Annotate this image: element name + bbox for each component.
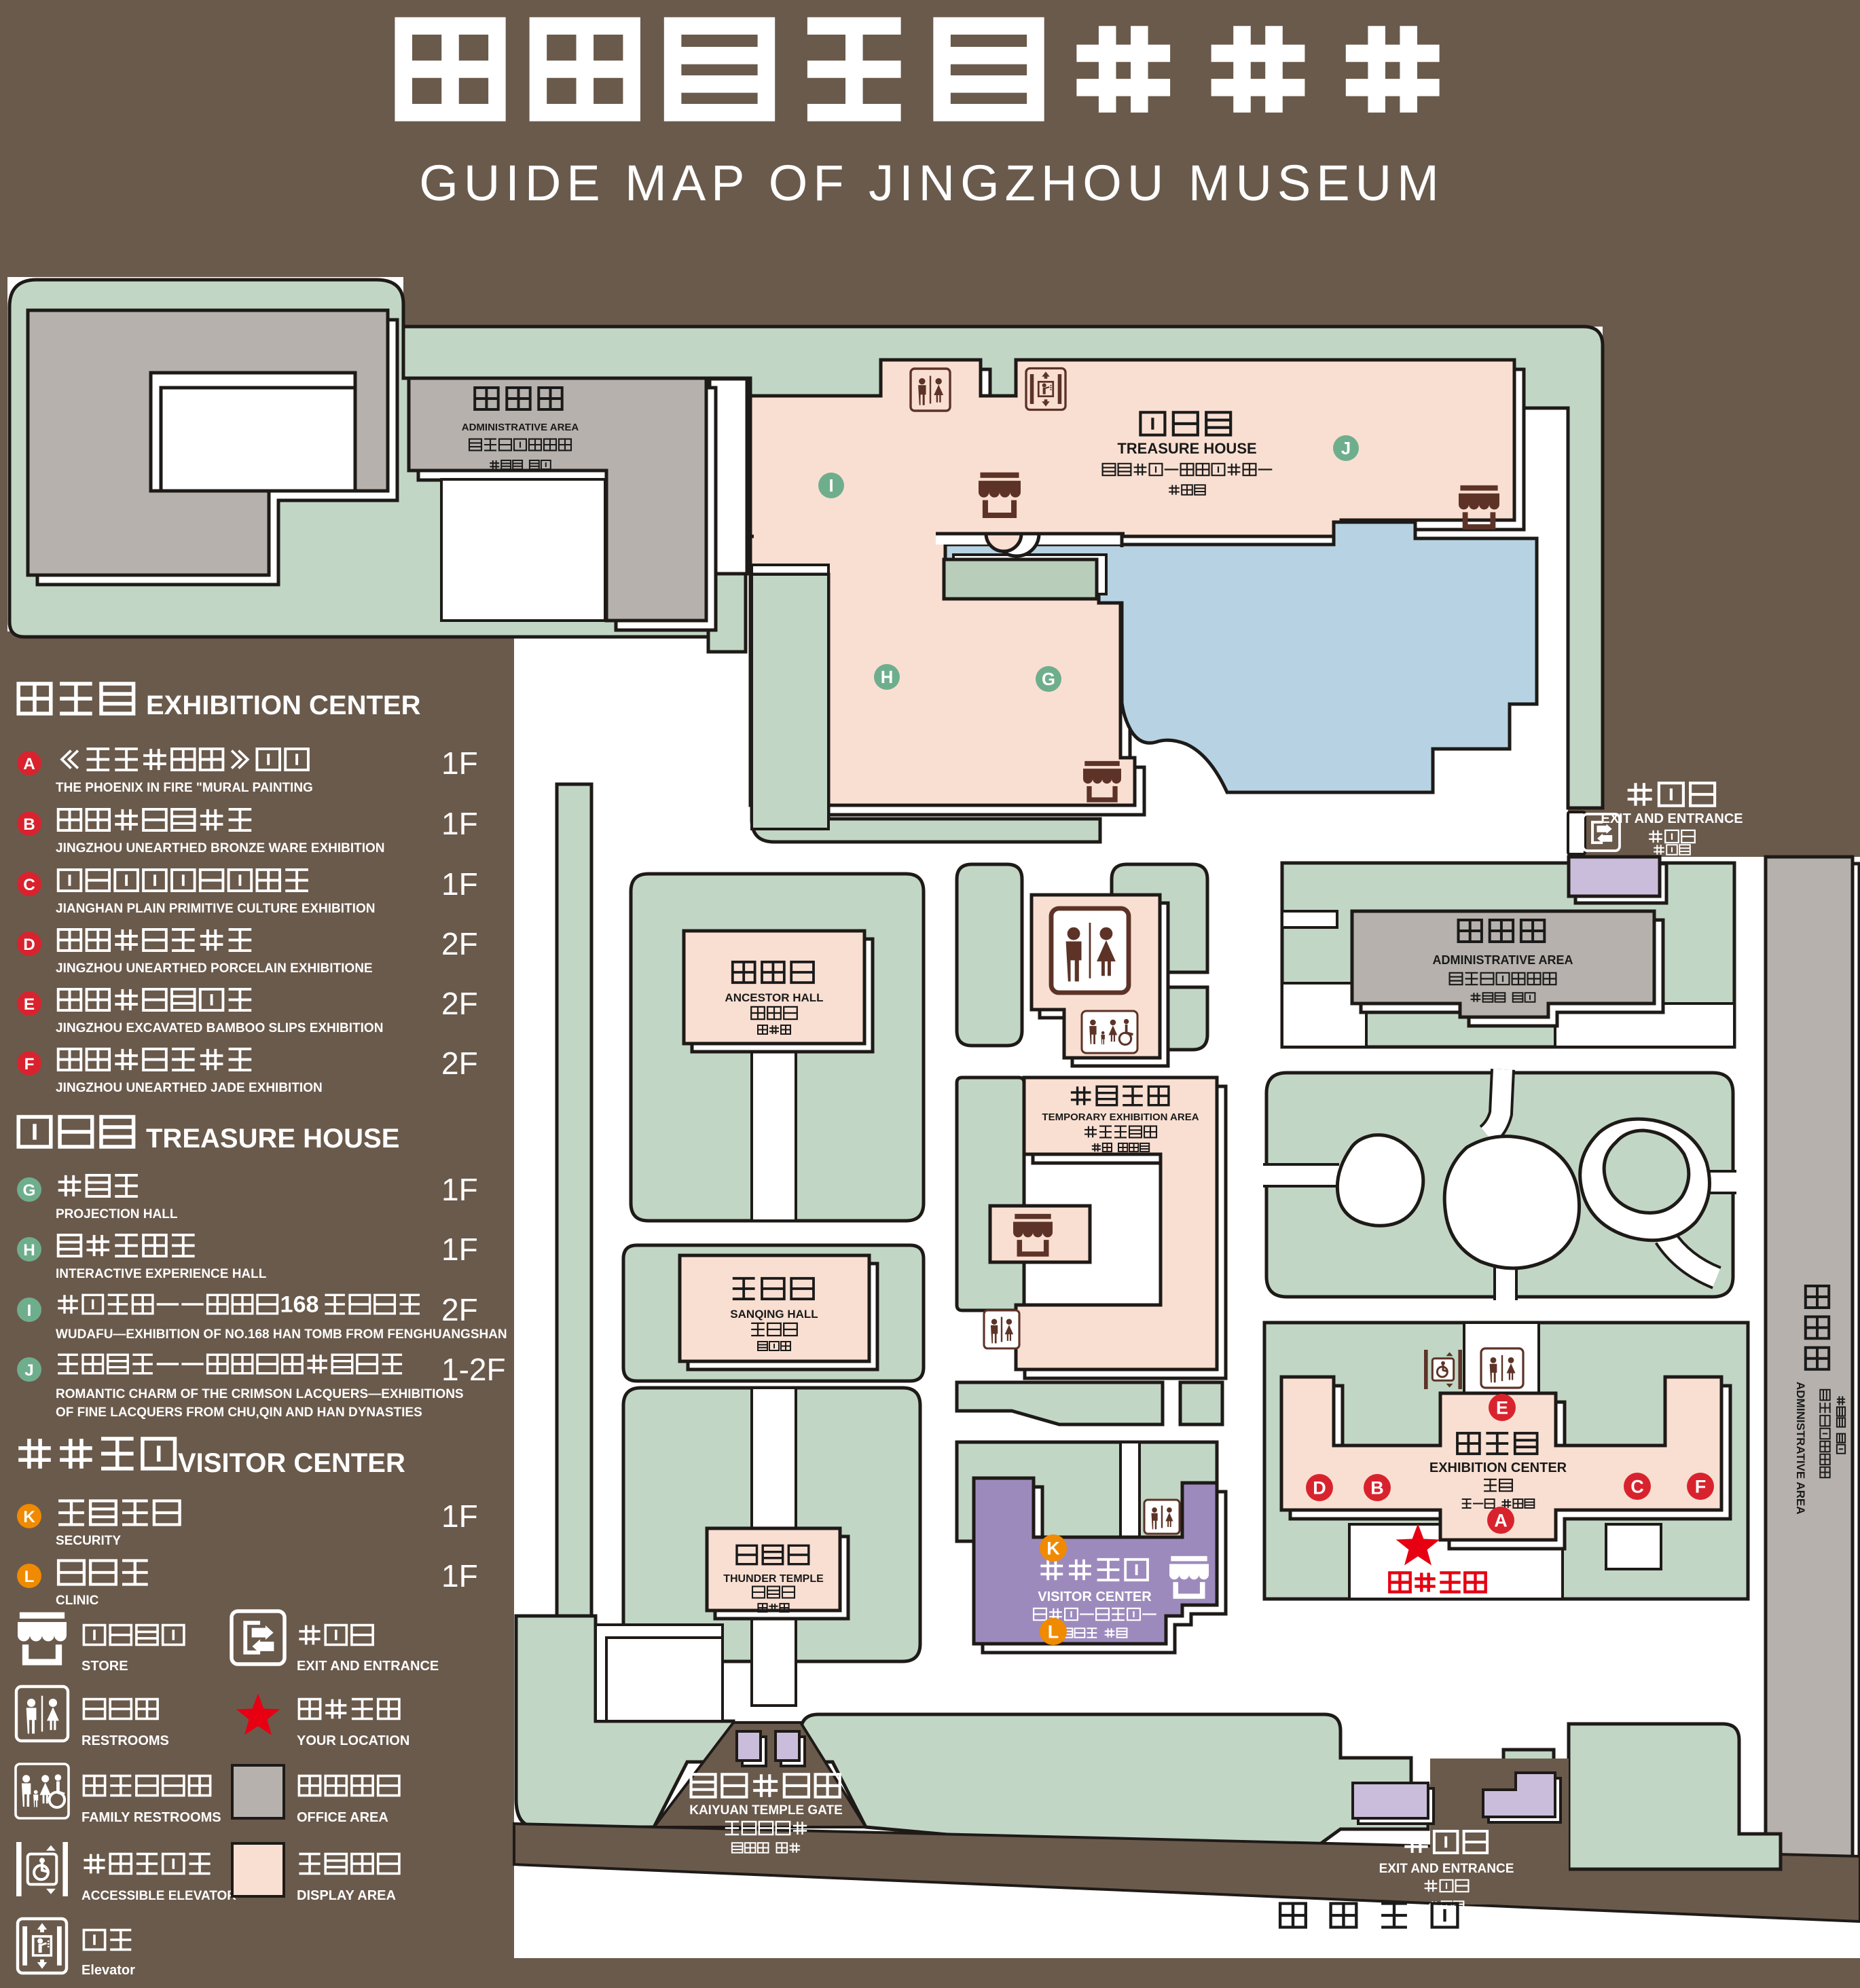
svg-text:FAMILY RESTROOMS: FAMILY RESTROOMS [81, 1810, 221, 1825]
svg-text:RESTROOMS: RESTROOMS [81, 1733, 169, 1748]
svg-text:EXHIBITION CENTER: EXHIBITION CENTER [146, 691, 421, 720]
svg-text:I: I [27, 1302, 32, 1320]
svg-text:PROJECTION HALL: PROJECTION HALL [56, 1207, 178, 1221]
svg-text:A: A [23, 755, 35, 773]
svg-text:I: I [828, 477, 833, 496]
svg-text:EXHIBITION CENTER: EXHIBITION CENTER [1429, 1460, 1567, 1475]
svg-text:E: E [1496, 1398, 1508, 1418]
svg-text:ROMANTIC CHARM OF THE CRIMSON: ROMANTIC CHARM OF THE CRIMSON LACQUERS—E… [56, 1387, 464, 1401]
svg-text:YOUR LOCATION: YOUR LOCATION [297, 1733, 409, 1748]
svg-text:JIANGHAN PLAIN PRIMITIVE CULTU: JIANGHAN PLAIN PRIMITIVE CULTURE EXHIBIT… [56, 902, 375, 916]
svg-text:TREASURE HOUSE: TREASURE HOUSE [1117, 440, 1256, 457]
svg-text:THUNDER TEMPLE: THUNDER TEMPLE [723, 1573, 824, 1585]
svg-text:1F: 1F [441, 1232, 478, 1267]
svg-text:STORE: STORE [81, 1659, 128, 1674]
svg-text:GUIDE MAP OF JINGZHOU MUSEUM: GUIDE MAP OF JINGZHOU MUSEUM [419, 155, 1444, 211]
svg-text:A: A [1494, 1511, 1508, 1531]
svg-text:1F: 1F [441, 806, 478, 841]
svg-text:K: K [1046, 1539, 1060, 1559]
svg-text:OF FINE LACQUERS FROM CHU,QIN: OF FINE LACQUERS FROM CHU,QIN AND HAN DY… [56, 1405, 422, 1420]
svg-text:2F: 2F [441, 986, 478, 1021]
svg-text:JINGZHOU UNEARTHED PORCELAIN E: JINGZHOU UNEARTHED PORCELAIN EXHIBITIONE [56, 961, 373, 976]
svg-text:ADMINISTRATIVE AREA: ADMINISTRATIVE AREA [1794, 1382, 1807, 1515]
svg-text:L: L [1048, 1622, 1059, 1642]
svg-text:EXIT AND ENTRANCE: EXIT AND ENTRANCE [297, 1659, 439, 1674]
svg-text:ADMINISTRATIVE AREA: ADMINISTRATIVE AREA [462, 422, 579, 433]
svg-text:CLINIC: CLINIC [56, 1594, 99, 1608]
svg-text:C: C [23, 876, 35, 894]
svg-text:1F: 1F [441, 1172, 478, 1207]
svg-text:F: F [24, 1055, 35, 1073]
svg-text:SANQING HALL: SANQING HALL [730, 1308, 818, 1321]
svg-text:C: C [1630, 1477, 1644, 1497]
svg-text:VISITOR CENTER: VISITOR CENTER [178, 1448, 405, 1478]
svg-text:1F: 1F [441, 1558, 478, 1594]
svg-text:DISPLAY AREA: DISPLAY AREA [297, 1888, 396, 1903]
svg-text:L: L [24, 1568, 35, 1586]
svg-text:Elevator: Elevator [81, 1963, 135, 1978]
svg-text:J: J [1341, 439, 1351, 458]
svg-text:H: H [23, 1241, 35, 1259]
svg-text:EXIT AND ENTRANCE: EXIT AND ENTRANCE [1601, 811, 1743, 826]
svg-text:G: G [23, 1181, 36, 1200]
svg-text:ACCESSIBLE ELEVATOR: ACCESSIBLE ELEVATOR [81, 1889, 236, 1903]
svg-text:2F: 2F [441, 926, 478, 961]
svg-text:JINGZHOU UNEARTHED JADE EXHIBI: JINGZHOU UNEARTHED JADE EXHIBITION [56, 1081, 323, 1095]
svg-text:OFFICE AREA: OFFICE AREA [297, 1810, 388, 1825]
svg-text:H: H [881, 668, 894, 687]
svg-text:D: D [23, 936, 35, 954]
svg-text:INTERACTIVE EXPERIENCE HALL: INTERACTIVE EXPERIENCE HALL [56, 1267, 267, 1281]
svg-text:1F: 1F [441, 745, 478, 781]
svg-text:TREASURE HOUSE: TREASURE HOUSE [146, 1124, 399, 1154]
svg-text:2F: 2F [441, 1046, 478, 1081]
svg-text:ANCESTOR HALL: ANCESTOR HALL [725, 991, 823, 1004]
svg-text:WUDAFU—EXHIBITION OF NO.168 HA: WUDAFU—EXHIBITION OF NO.168 HAN TOMB FRO… [56, 1327, 507, 1342]
svg-text:D: D [1313, 1478, 1326, 1498]
svg-text:TEMPORARY EXHIBITION AREA: TEMPORARY EXHIBITION AREA [1042, 1111, 1199, 1123]
svg-text:ADMINISTRATIVE AREA: ADMINISTRATIVE AREA [1433, 953, 1573, 967]
svg-text:E: E [24, 995, 35, 1014]
svg-text:B: B [1370, 1478, 1384, 1498]
svg-text:THE PHOENIX IN FIRE "MURAL PAI: THE PHOENIX IN FIRE "MURAL PAINTING [56, 781, 313, 795]
svg-text:EXIT AND ENTRANCE: EXIT AND ENTRANCE [1379, 1862, 1514, 1876]
svg-text:KAIYUAN TEMPLE GATE: KAIYUAN TEMPLE GATE [689, 1803, 843, 1818]
svg-text:1F: 1F [441, 1498, 478, 1534]
svg-text:1-2F: 1-2F [441, 1352, 506, 1387]
svg-text:G: G [1042, 670, 1055, 689]
svg-text:SECURITY: SECURITY [56, 1534, 121, 1548]
svg-text:168: 168 [280, 1292, 319, 1318]
svg-text:2F: 2F [441, 1292, 478, 1327]
svg-text:K: K [23, 1508, 35, 1526]
svg-text:1F: 1F [441, 866, 478, 902]
svg-text:VISITOR CENTER: VISITOR CENTER [1038, 1589, 1152, 1604]
svg-text:B: B [23, 815, 35, 834]
svg-text:F: F [1695, 1477, 1707, 1497]
svg-text:JINGZHOU UNEARTHED BRONZE WARE: JINGZHOU UNEARTHED BRONZE WARE EXHIBITIO… [56, 841, 385, 855]
svg-text:JINGZHOU EXCAVATED BAMBOO SLIP: JINGZHOU EXCAVATED BAMBOO SLIPS EXHIBITI… [56, 1021, 383, 1035]
svg-text:J: J [24, 1361, 34, 1380]
